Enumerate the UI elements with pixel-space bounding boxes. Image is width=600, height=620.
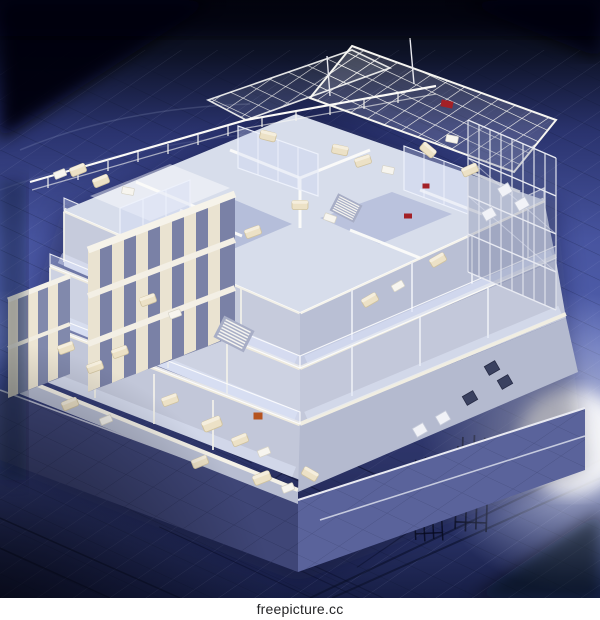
photo-canvas	[0, 0, 600, 598]
stock-photo-page: freepicture.cc	[0, 0, 600, 620]
watermark-bar: freepicture.cc	[0, 598, 600, 620]
watermark-text: freepicture.cc	[257, 602, 344, 616]
architectural-model-photo	[0, 0, 600, 598]
